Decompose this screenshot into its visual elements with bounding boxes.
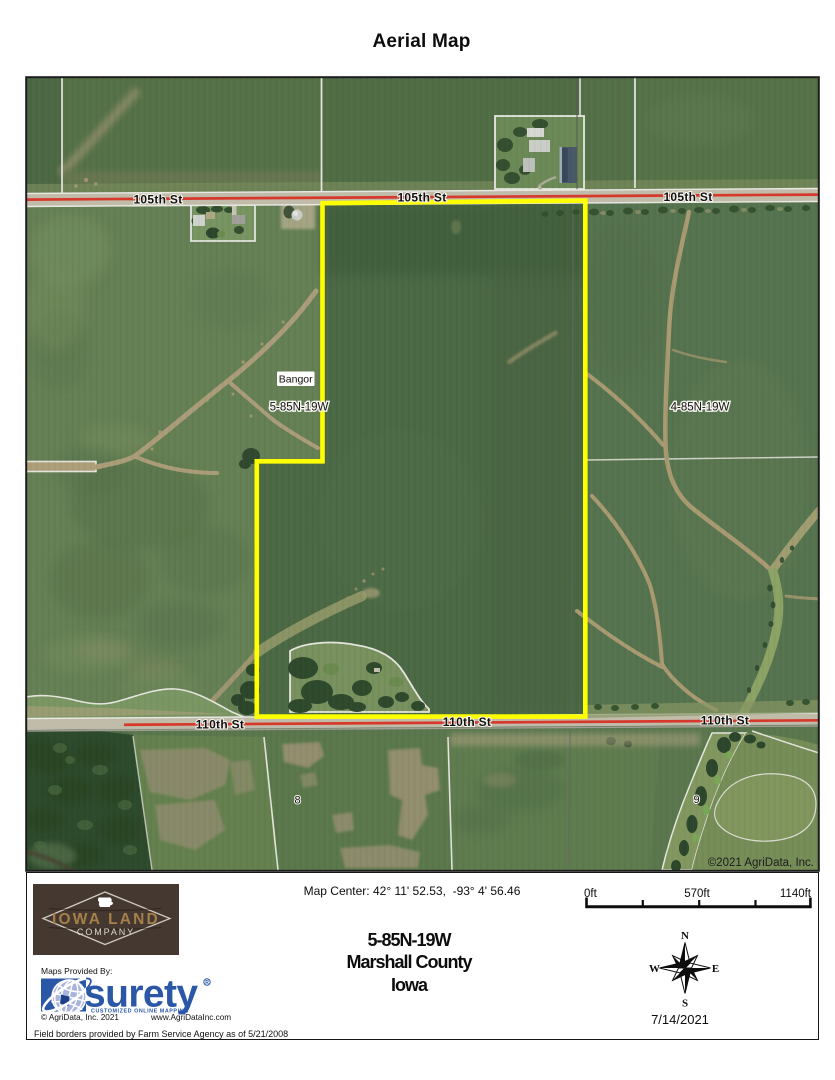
svg-text:Bangor: Bangor bbox=[279, 374, 313, 386]
svg-text:9: 9 bbox=[693, 794, 699, 806]
svg-text:4-85N-19W: 4-85N-19W bbox=[671, 402, 730, 414]
svg-text:N: N bbox=[681, 930, 689, 942]
svg-text:E: E bbox=[712, 963, 719, 975]
svg-text:©2021 AgriData, Inc.: ©2021 AgriData, Inc. bbox=[708, 857, 814, 869]
svg-text:IOWA LAND: IOWA LAND bbox=[52, 911, 160, 928]
svg-text:W: W bbox=[649, 963, 660, 975]
svg-text:110th St: 110th St bbox=[443, 715, 491, 729]
svg-text:105th St: 105th St bbox=[663, 190, 712, 204]
svg-text:110th St: 110th St bbox=[701, 714, 749, 728]
svg-text:S: S bbox=[682, 998, 688, 1010]
svg-text:1140ft: 1140ft bbox=[780, 888, 812, 900]
svg-text:105th St: 105th St bbox=[397, 191, 446, 205]
svg-text:110th St: 110th St bbox=[196, 718, 244, 732]
svg-text:570ft: 570ft bbox=[684, 888, 710, 900]
svg-text:105th St: 105th St bbox=[133, 193, 182, 207]
svg-text:8: 8 bbox=[294, 795, 300, 807]
svg-text:5-85N-19W: 5-85N-19W bbox=[270, 402, 329, 414]
